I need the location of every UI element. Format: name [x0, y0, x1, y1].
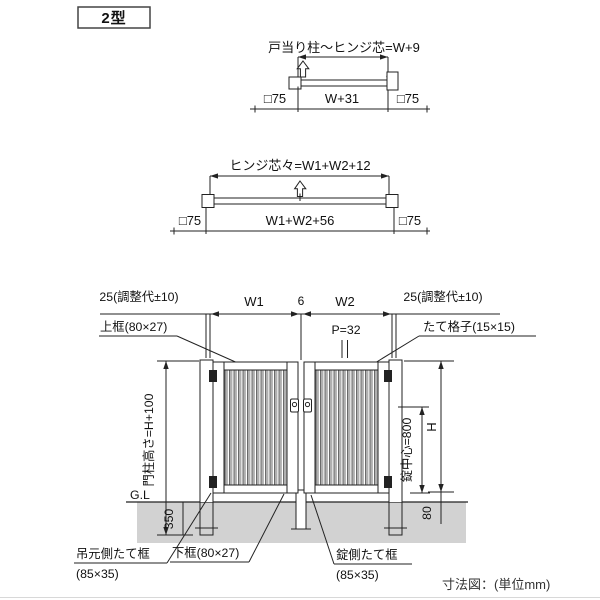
hinge-stile-label: 吊元側たて框 — [76, 547, 150, 561]
post-size-right-label: □75 — [399, 213, 421, 228]
post-size-left-label: □75 — [179, 213, 201, 228]
units-note: 寸法図：(単位mm) — [442, 577, 550, 592]
pitch-callout: P=32 — [331, 323, 360, 358]
gate-height-label: H — [424, 422, 439, 431]
hinge-post-plan — [387, 72, 398, 90]
arrow-right-icon — [380, 54, 388, 59]
post-size-left-label: □75 — [264, 91, 286, 106]
arrow-up-icon — [419, 407, 424, 415]
ground-clearance-label: 80 — [420, 506, 434, 520]
model-type-label: 2型 — [101, 9, 126, 27]
gate-leaf-plan — [301, 80, 387, 86]
w2-label: W2 — [335, 294, 355, 309]
plan-single-bottom-dim: □75 W+31 □75 — [250, 87, 430, 113]
arrow-left-icon — [298, 54, 306, 59]
lock-center-dim: 錠中心=800 — [398, 407, 430, 493]
hinge-icon — [384, 476, 392, 488]
drawing-canvas: 2型 戸当り柱～ヒンジ芯=W+9 □75 W+31 □75 — [0, 0, 600, 600]
hinge-post-left-plan — [202, 195, 214, 208]
plan-double-bottom-dim: □75 W1+W2+56 □75 — [170, 208, 430, 235]
lock-stile — [287, 362, 298, 493]
arrow-left-icon — [211, 311, 219, 317]
hinge-icon — [209, 476, 217, 488]
bottom-rail — [224, 485, 287, 493]
plan-double-diagram: ヒンジ芯々=W1+W2+12 □75 W1+W2+56 □75 — [170, 158, 430, 235]
plan-single-dim-line — [298, 54, 390, 79]
arrow-up-icon — [438, 361, 443, 369]
bottom-rail — [315, 485, 378, 493]
plan-double-hinge-dim-label: ヒンジ芯々=W1+W2+12 — [229, 158, 370, 173]
model-type-box: 2型 — [78, 7, 150, 28]
gate-lock — [291, 399, 312, 412]
top-rail — [315, 362, 378, 370]
pitch-label: P=32 — [331, 323, 360, 337]
lattice-callout: たて格子(15×15) — [370, 319, 536, 366]
door-stop-post-plan — [289, 77, 301, 89]
elevation-diagram: 25(調整代±10) W1 6 W2 25(調整代±10) 上框(80×27) … — [74, 289, 536, 582]
lock-center-label: 錠中心=800 — [399, 418, 414, 483]
arrow-left-icon — [210, 173, 218, 178]
lock-stile-label: 錠側たて框 — [336, 547, 398, 562]
hinge-icon — [384, 370, 392, 382]
plan-double-gate — [202, 194, 398, 208]
top-rail-callout: 上框(80×27) — [99, 320, 240, 364]
arrow-left-icon — [303, 311, 311, 317]
lock-stile — [304, 362, 315, 493]
hinge-icon — [209, 370, 217, 382]
top-rail — [224, 362, 287, 370]
bottom-rail-label: 下框(80×27) — [172, 546, 239, 560]
arrow-down-icon — [419, 485, 424, 493]
post-height-label: 門柱高さ=H+100 — [141, 393, 156, 486]
hinge-post-right-plan — [386, 195, 398, 208]
arrow-down-icon — [438, 484, 443, 492]
w1-label: W1 — [244, 294, 264, 309]
adjust-right-label: 25(調整代±10) — [403, 289, 482, 304]
adjust-left-label: 25(調整代±10) — [99, 289, 178, 304]
dimension-drawing: 2型 戸当り柱～ヒンジ芯=W+9 □75 W+31 □75 — [0, 0, 600, 600]
embed-depth-label: 350 — [162, 509, 176, 530]
lock-stile-size-label: (85×35) — [336, 568, 379, 582]
top-rail-label: 上框(80×27) — [100, 320, 167, 334]
gate-leaf-left — [213, 362, 298, 493]
post-size-right-label: □75 — [397, 91, 419, 106]
width-dim-label: W+31 — [325, 91, 359, 106]
arrow-right-icon — [383, 311, 391, 317]
ground-level-label: G.L — [130, 488, 150, 502]
arrow-up-icon — [163, 361, 168, 369]
arrow-right-icon — [381, 173, 389, 178]
width-dim-label: W1+W2+56 — [266, 213, 335, 228]
arrow-right-icon — [291, 311, 299, 317]
lattice-label: たて格子(15×15) — [423, 319, 515, 334]
gate-leaf-right — [304, 362, 389, 493]
center-gap-label: 6 — [298, 294, 305, 308]
hinge-stile-size-label: (85×35) — [76, 567, 119, 581]
plan-single-hinge-dim-label: 戸当り柱～ヒンジ芯=W+9 — [268, 40, 420, 55]
plan-single-diagram: 戸当り柱～ヒンジ芯=W+9 □75 W+31 □75 — [250, 40, 430, 113]
open-direction-arrow-icon — [297, 61, 309, 77]
